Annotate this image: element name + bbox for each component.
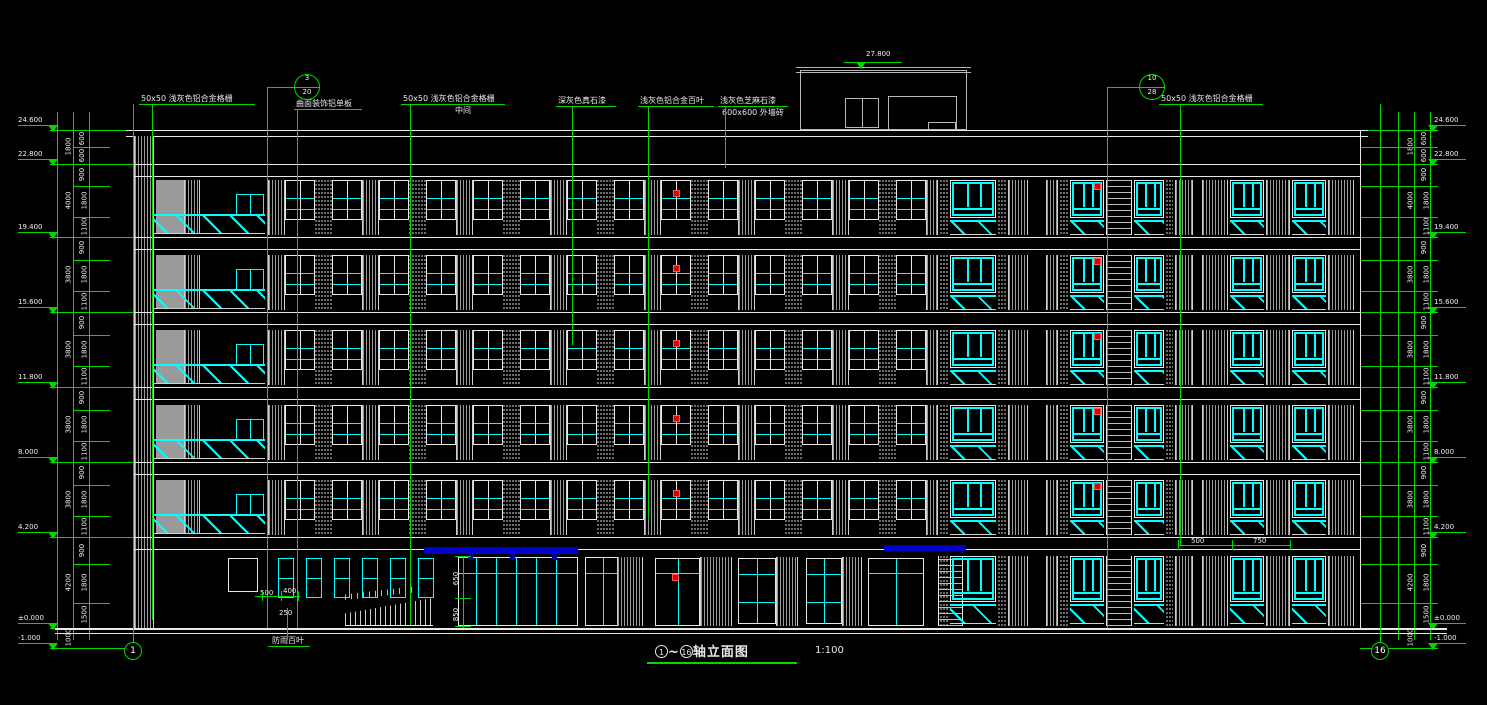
ground-line[interactable] xyxy=(55,628,1447,630)
balcony-glass[interactable] xyxy=(1230,445,1264,460)
ground-line-2[interactable] xyxy=(55,633,1447,634)
stipple-panel[interactable] xyxy=(998,556,1006,626)
louver-panel[interactable] xyxy=(268,330,285,385)
louver-panel[interactable] xyxy=(362,330,379,385)
stipple-panel[interactable] xyxy=(879,480,896,535)
louver-panel[interactable] xyxy=(1175,255,1193,310)
dim-sub-tick[interactable] xyxy=(73,186,110,187)
louver-panel[interactable] xyxy=(1202,480,1228,535)
louver-panel[interactable] xyxy=(832,180,849,235)
label-leader-line[interactable] xyxy=(1180,104,1181,545)
balcony-rail[interactable] xyxy=(153,514,265,534)
floor-slab-line-2[interactable] xyxy=(133,474,1360,475)
window-mullion xyxy=(770,256,771,294)
balcony-glass[interactable] xyxy=(950,445,996,460)
balcony-glass[interactable] xyxy=(1230,520,1264,535)
entrance-canopy[interactable] xyxy=(424,547,578,554)
label-leader-line[interactable] xyxy=(572,106,573,345)
balcony-glass[interactable] xyxy=(1134,520,1164,535)
floor-slab-line[interactable] xyxy=(133,537,1360,538)
louver-panel[interactable] xyxy=(1175,480,1193,535)
louver-panel[interactable] xyxy=(738,405,755,460)
louver-panel[interactable] xyxy=(1046,330,1058,385)
dim-level-tick[interactable] xyxy=(1360,164,1438,165)
louver-panel[interactable] xyxy=(268,480,285,535)
stipple-panel[interactable] xyxy=(1166,255,1173,310)
balcony-glass[interactable] xyxy=(950,295,996,310)
louver-panel[interactable] xyxy=(1266,556,1290,626)
louver-panel[interactable] xyxy=(926,330,938,385)
grid-axis-line[interactable] xyxy=(133,104,134,642)
louver-panel[interactable] xyxy=(1328,405,1354,460)
balcony-glass[interactable] xyxy=(1230,604,1264,624)
right-dim-tick[interactable] xyxy=(1178,540,1179,550)
stipple-panel[interactable] xyxy=(503,180,520,235)
dim-sub-tick[interactable] xyxy=(73,260,110,261)
stipple-panel[interactable] xyxy=(1060,556,1068,626)
stipple-panel[interactable] xyxy=(1166,405,1173,460)
louver-tower[interactable] xyxy=(134,136,154,628)
dim-sub-tick[interactable] xyxy=(73,603,110,604)
louver-panel[interactable] xyxy=(738,330,755,385)
stipple-panel[interactable] xyxy=(409,480,426,535)
balcony-rail[interactable] xyxy=(153,364,265,384)
louver-panel[interactable] xyxy=(1328,330,1354,385)
ladder-louver[interactable] xyxy=(1106,405,1132,460)
louver-panel[interactable] xyxy=(926,180,938,235)
louver-panel[interactable] xyxy=(456,255,473,310)
balcony-glass[interactable] xyxy=(1292,370,1326,385)
curtain-window-sill xyxy=(1072,433,1102,435)
balcony-glass[interactable] xyxy=(1134,370,1164,385)
balcony-rail[interactable] xyxy=(153,289,265,309)
stipple-panel[interactable] xyxy=(315,255,332,310)
louver-panel[interactable] xyxy=(738,180,755,235)
detail-bubble-stem[interactable] xyxy=(267,87,268,628)
louver-panel[interactable] xyxy=(268,255,285,310)
louver-panel[interactable] xyxy=(1202,255,1228,310)
right-dim-tick[interactable] xyxy=(1290,540,1291,550)
louver-panel[interactable] xyxy=(362,180,379,235)
left-ground-dim-tick[interactable] xyxy=(281,591,282,601)
label-underline[interactable] xyxy=(139,104,255,105)
label-underline[interactable] xyxy=(401,104,505,105)
stipple-panel[interactable] xyxy=(1060,255,1068,310)
louver-panel[interactable] xyxy=(832,405,849,460)
balcony-glass[interactable] xyxy=(1292,220,1326,235)
dim-level-tick[interactable] xyxy=(50,387,133,388)
right-dim-line[interactable] xyxy=(1178,545,1290,546)
balcony-glass[interactable] xyxy=(1230,370,1264,385)
louver-panel[interactable] xyxy=(926,480,938,535)
window-mullion xyxy=(347,406,348,444)
stipple-panel[interactable] xyxy=(940,255,948,310)
louver-panel[interactable] xyxy=(1175,330,1193,385)
balcony-glass[interactable] xyxy=(1070,370,1104,385)
dim-level-tick[interactable] xyxy=(50,462,133,463)
balcony-glass[interactable] xyxy=(1134,604,1164,624)
building-right-edge[interactable] xyxy=(1360,130,1361,628)
dim-sub-tick[interactable] xyxy=(1360,335,1438,336)
ground-label-underline[interactable] xyxy=(268,646,310,647)
louver-panel[interactable] xyxy=(362,405,379,460)
louver-panel[interactable] xyxy=(1008,405,1028,460)
ground-dim-tick[interactable] xyxy=(455,556,471,557)
louver-panel[interactable] xyxy=(644,330,661,385)
stipple-panel[interactable] xyxy=(1060,180,1068,235)
balcony-rail[interactable] xyxy=(153,214,265,234)
cad-elevation-canvas[interactable]: 1~16轴立面图 1:100 24.60022.800180019.400400… xyxy=(0,0,1487,705)
louver-panel[interactable] xyxy=(1266,480,1290,535)
ramp-railing[interactable] xyxy=(345,586,417,600)
label-leader-line[interactable] xyxy=(152,104,153,620)
dim-level-tick[interactable] xyxy=(1360,462,1438,463)
grid-axis-bubble[interactable]: 1 xyxy=(124,642,142,660)
parapet-line-2[interactable] xyxy=(126,136,1368,137)
louver-panel[interactable] xyxy=(644,405,661,460)
louver-panel[interactable] xyxy=(842,557,862,626)
louver-panel[interactable] xyxy=(644,180,661,235)
entrance-canopy[interactable] xyxy=(884,545,966,551)
label-leader-line[interactable] xyxy=(725,106,726,168)
window-mullion xyxy=(441,481,442,519)
left-ground-dim-tick[interactable] xyxy=(262,591,263,601)
stipple-panel[interactable] xyxy=(940,556,948,626)
dim-level-tick[interactable] xyxy=(1360,237,1438,238)
stipple-panel[interactable] xyxy=(785,330,802,385)
louver-panel[interactable] xyxy=(456,180,473,235)
floor-slab-line-2[interactable] xyxy=(133,399,1360,400)
dim-level-tick[interactable] xyxy=(1360,312,1438,313)
stipple-panel[interactable] xyxy=(998,405,1006,460)
stipple-panel[interactable] xyxy=(409,255,426,310)
grid-axis-bubble[interactable]: 16 xyxy=(1371,642,1389,660)
detail-bubble-connector[interactable] xyxy=(267,87,294,88)
red-ac-marker[interactable] xyxy=(673,490,680,497)
balcony-glass[interactable] xyxy=(1134,445,1164,460)
dim-chain-line[interactable] xyxy=(89,112,90,640)
stipple-panel[interactable] xyxy=(503,330,520,385)
stipple-panel[interactable] xyxy=(691,180,708,235)
stipple-panel[interactable] xyxy=(597,330,614,385)
louver-panel[interactable] xyxy=(1328,180,1354,235)
left-ground-dim-tick[interactable] xyxy=(298,591,299,601)
stipple-panel[interactable] xyxy=(785,255,802,310)
stipple-panel[interactable] xyxy=(409,180,426,235)
louver-panel[interactable] xyxy=(776,557,798,626)
balcony-glass[interactable] xyxy=(1070,520,1104,535)
label-underline[interactable] xyxy=(718,106,788,107)
stipple-panel[interactable] xyxy=(315,330,332,385)
louver-panel[interactable] xyxy=(644,480,661,535)
louver-panel[interactable] xyxy=(1266,180,1290,235)
stipple-panel[interactable] xyxy=(879,405,896,460)
floor-slab-line[interactable] xyxy=(133,164,1360,165)
ground-door[interactable] xyxy=(228,558,258,592)
roof-elevation-line[interactable] xyxy=(844,62,902,63)
stipple-panel[interactable] xyxy=(691,405,708,460)
dim-chain-line[interactable] xyxy=(1398,112,1399,640)
label-leader-line[interactable] xyxy=(410,104,411,625)
louver-panel[interactable] xyxy=(832,255,849,310)
dim-sub-tick[interactable] xyxy=(73,564,110,565)
red-ac-marker[interactable] xyxy=(672,574,679,581)
stipple-panel[interactable] xyxy=(879,255,896,310)
louver-panel[interactable] xyxy=(1328,255,1354,310)
louver-panel[interactable] xyxy=(1266,405,1290,460)
stipple-panel[interactable] xyxy=(785,180,802,235)
ladder-louver[interactable] xyxy=(1106,330,1132,385)
balcony-glass[interactable] xyxy=(1134,295,1164,310)
stipple-panel[interactable] xyxy=(691,480,708,535)
stipple-panel[interactable] xyxy=(940,180,948,235)
dim-sub-tick[interactable] xyxy=(1360,603,1438,604)
red-ac-marker[interactable] xyxy=(1094,333,1101,340)
stipple-panel[interactable] xyxy=(940,330,948,385)
floor-slab-line[interactable] xyxy=(133,237,1360,238)
label-leader-line[interactable] xyxy=(297,109,298,628)
dim-level-tick[interactable] xyxy=(50,237,133,238)
dim-sub-tick[interactable] xyxy=(1360,260,1438,261)
dim-level-tick[interactable] xyxy=(1360,387,1438,388)
right-dim-tick[interactable] xyxy=(1232,540,1233,550)
stipple-panel[interactable] xyxy=(409,330,426,385)
red-ac-marker[interactable] xyxy=(673,340,680,347)
dim-sub-tick[interactable] xyxy=(73,441,110,442)
louver-panel[interactable] xyxy=(1175,556,1193,626)
floor-slab-line[interactable] xyxy=(133,387,1360,388)
louver-panel[interactable] xyxy=(362,480,379,535)
stipple-panel[interactable] xyxy=(503,405,520,460)
balcony-glass[interactable] xyxy=(1070,445,1104,460)
louver-panel[interactable] xyxy=(456,480,473,535)
stipple-panel[interactable] xyxy=(1166,180,1173,235)
red-ac-marker[interactable] xyxy=(673,190,680,197)
stipple-panel[interactable] xyxy=(691,330,708,385)
label-underline[interactable] xyxy=(1159,104,1263,105)
louver-panel[interactable] xyxy=(456,330,473,385)
ladder-louver[interactable] xyxy=(1106,480,1132,535)
stipple-panel[interactable] xyxy=(998,180,1006,235)
penthouse-roof-slab-2[interactable] xyxy=(796,72,971,73)
louver-panel[interactable] xyxy=(550,180,567,235)
louver-panel[interactable] xyxy=(832,330,849,385)
dim-sub-tick[interactable] xyxy=(73,217,110,218)
louver-panel[interactable] xyxy=(362,255,379,310)
drawing-title: 轴立面图 xyxy=(693,641,749,660)
louver-panel[interactable] xyxy=(1202,330,1228,385)
parapet-line[interactable] xyxy=(126,130,1368,131)
dim-level-tick[interactable] xyxy=(1360,537,1438,538)
stipple-panel[interactable] xyxy=(940,480,948,535)
label-underline[interactable] xyxy=(556,106,616,107)
stipple-panel[interactable] xyxy=(1060,405,1068,460)
louver-panel[interactable] xyxy=(1202,405,1228,460)
louver-panel[interactable] xyxy=(1202,180,1228,235)
dim-sub-tick[interactable] xyxy=(1360,564,1438,565)
louver-panel[interactable] xyxy=(1046,255,1058,310)
louver-panel[interactable] xyxy=(456,405,473,460)
louver-panel[interactable] xyxy=(738,480,755,535)
label-leader-line[interactable] xyxy=(648,106,649,520)
balcony-glass[interactable] xyxy=(1292,445,1326,460)
window-mullion xyxy=(911,331,912,369)
ladder-louver[interactable] xyxy=(1106,556,1132,626)
red-ac-marker[interactable] xyxy=(1094,483,1101,490)
balcony-glass[interactable] xyxy=(1134,220,1164,235)
louver-panel[interactable] xyxy=(1328,556,1354,626)
stipple-panel[interactable] xyxy=(998,330,1006,385)
red-ac-marker[interactable] xyxy=(1094,183,1101,190)
dim-level-tick[interactable] xyxy=(50,537,133,538)
louver-panel[interactable] xyxy=(268,180,285,235)
louver-panel[interactable] xyxy=(1328,480,1354,535)
penthouse-roof-slab[interactable] xyxy=(796,67,971,68)
louver-panel[interactable] xyxy=(1175,405,1193,460)
louver-panel[interactable] xyxy=(550,255,567,310)
louver-panel[interactable] xyxy=(1046,480,1058,535)
louver-panel[interactable] xyxy=(1202,556,1228,626)
louver-panel[interactable] xyxy=(550,480,567,535)
dim-chain-line[interactable] xyxy=(57,112,58,640)
louver-panel[interactable] xyxy=(926,255,938,310)
ground-dim-tick[interactable] xyxy=(455,626,471,627)
ladder-louver[interactable] xyxy=(1106,180,1132,235)
balcony-glass[interactable] xyxy=(1292,604,1326,624)
stipple-panel[interactable] xyxy=(998,255,1006,310)
stipple-panel[interactable] xyxy=(315,180,332,235)
louver-panel[interactable] xyxy=(268,405,285,460)
window-mullion xyxy=(582,406,583,444)
floor-slab-line-2[interactable] xyxy=(133,176,1360,177)
louver-panel[interactable] xyxy=(1046,556,1058,626)
stipple-panel[interactable] xyxy=(503,255,520,310)
louver-panel[interactable] xyxy=(1008,480,1028,535)
dim-level-tick[interactable] xyxy=(50,130,133,131)
louver-panel[interactable] xyxy=(926,405,938,460)
floor-slab-line-2[interactable] xyxy=(133,324,1360,325)
stipple-panel[interactable] xyxy=(315,480,332,535)
dim-sub-tick[interactable] xyxy=(1360,485,1438,486)
louver-panel[interactable] xyxy=(738,255,755,310)
stipple-panel[interactable] xyxy=(1166,330,1173,385)
balcony-glass[interactable] xyxy=(1070,295,1104,310)
stipple-panel[interactable] xyxy=(1060,330,1068,385)
dim-level-tick[interactable] xyxy=(50,164,133,165)
dim-sub-tick[interactable] xyxy=(73,485,110,486)
dim-sub-tick[interactable] xyxy=(73,366,110,367)
balcony-glass[interactable] xyxy=(950,520,996,535)
detail-bubble-connector[interactable] xyxy=(1107,87,1139,88)
dim-sub-tick[interactable] xyxy=(73,291,110,292)
stipple-panel[interactable] xyxy=(1060,480,1068,535)
ladder-louver[interactable] xyxy=(1106,255,1132,310)
floor-slab-line[interactable] xyxy=(133,462,1360,463)
balcony-glass[interactable] xyxy=(950,604,996,624)
balcony-glass[interactable] xyxy=(1230,295,1264,310)
stipple-panel[interactable] xyxy=(597,405,614,460)
stipple-panel[interactable] xyxy=(691,255,708,310)
red-ac-marker[interactable] xyxy=(1094,408,1101,415)
dim-sub-tick[interactable] xyxy=(73,410,110,411)
stipple-panel[interactable] xyxy=(597,255,614,310)
red-ac-marker[interactable] xyxy=(1094,258,1101,265)
balcony-glass[interactable] xyxy=(1292,520,1326,535)
balcony-glass[interactable] xyxy=(1292,295,1326,310)
stipple-panel[interactable] xyxy=(879,330,896,385)
louver-panel[interactable] xyxy=(1046,180,1058,235)
balcony-rail[interactable] xyxy=(153,439,265,459)
louver-panel[interactable] xyxy=(1008,330,1028,385)
stipple-panel[interactable] xyxy=(315,405,332,460)
louver-panel[interactable] xyxy=(832,480,849,535)
dim-sub-tick[interactable] xyxy=(73,335,110,336)
stipple-panel[interactable] xyxy=(1166,556,1173,626)
balcony-glass[interactable] xyxy=(1070,220,1104,235)
balcony-glass[interactable] xyxy=(950,370,996,385)
stipple-panel[interactable] xyxy=(409,405,426,460)
louver-panel[interactable] xyxy=(1008,180,1028,235)
red-ac-marker[interactable] xyxy=(673,415,680,422)
dim-level-tick[interactable] xyxy=(50,648,133,649)
louver-panel[interactable] xyxy=(1175,180,1193,235)
red-ac-marker[interactable] xyxy=(673,265,680,272)
stipple-panel[interactable] xyxy=(785,405,802,460)
detail-bubble-divider[interactable] xyxy=(294,87,320,88)
stipple-panel[interactable] xyxy=(503,480,520,535)
louver-panel[interactable] xyxy=(550,405,567,460)
louver-panel[interactable] xyxy=(1008,255,1028,310)
dim-chain-line[interactable] xyxy=(73,112,74,640)
label-underline[interactable] xyxy=(294,109,362,110)
balcony-glass[interactable] xyxy=(1070,604,1104,624)
louver-panel[interactable] xyxy=(1008,556,1028,626)
louver-panel[interactable] xyxy=(617,557,643,626)
floor-slab-line-2[interactable] xyxy=(133,249,1360,250)
louver-window-mullion xyxy=(335,578,349,579)
stipple-panel[interactable] xyxy=(940,405,948,460)
ground-dim-line[interactable] xyxy=(463,556,464,628)
dim-level-tick[interactable] xyxy=(50,312,133,313)
ground-dim-tick[interactable] xyxy=(455,598,471,599)
grid-axis-line[interactable] xyxy=(1380,104,1381,642)
stipple-panel[interactable] xyxy=(1166,480,1173,535)
floor-slab-line-2[interactable] xyxy=(133,549,1360,550)
curtain-window-mullion xyxy=(980,408,982,432)
stipple-panel[interactable] xyxy=(879,180,896,235)
stipple-panel[interactable] xyxy=(597,180,614,235)
louver-panel[interactable] xyxy=(700,557,732,626)
stipple-panel[interactable] xyxy=(998,480,1006,535)
louver-panel[interactable] xyxy=(644,255,661,310)
dim-sub-tick[interactable] xyxy=(73,516,110,517)
floor-slab-line[interactable] xyxy=(133,312,1360,313)
louver-panel[interactable] xyxy=(1046,405,1058,460)
dim-sub-tick[interactable] xyxy=(1360,410,1438,411)
stipple-panel[interactable] xyxy=(597,480,614,535)
detail-bubble-stem[interactable] xyxy=(1107,87,1108,628)
balcony-glass[interactable] xyxy=(950,220,996,235)
balcony-glass[interactable] xyxy=(1230,220,1264,235)
louver-panel[interactable] xyxy=(1266,330,1290,385)
dim-sub-tick[interactable] xyxy=(1360,186,1438,187)
label-underline[interactable] xyxy=(638,106,714,107)
detail-bubble-divider[interactable] xyxy=(1139,87,1165,88)
louver-panel[interactable] xyxy=(1266,255,1290,310)
louver-panel[interactable] xyxy=(550,330,567,385)
stipple-panel[interactable] xyxy=(785,480,802,535)
entrance-ramp[interactable] xyxy=(345,598,433,626)
